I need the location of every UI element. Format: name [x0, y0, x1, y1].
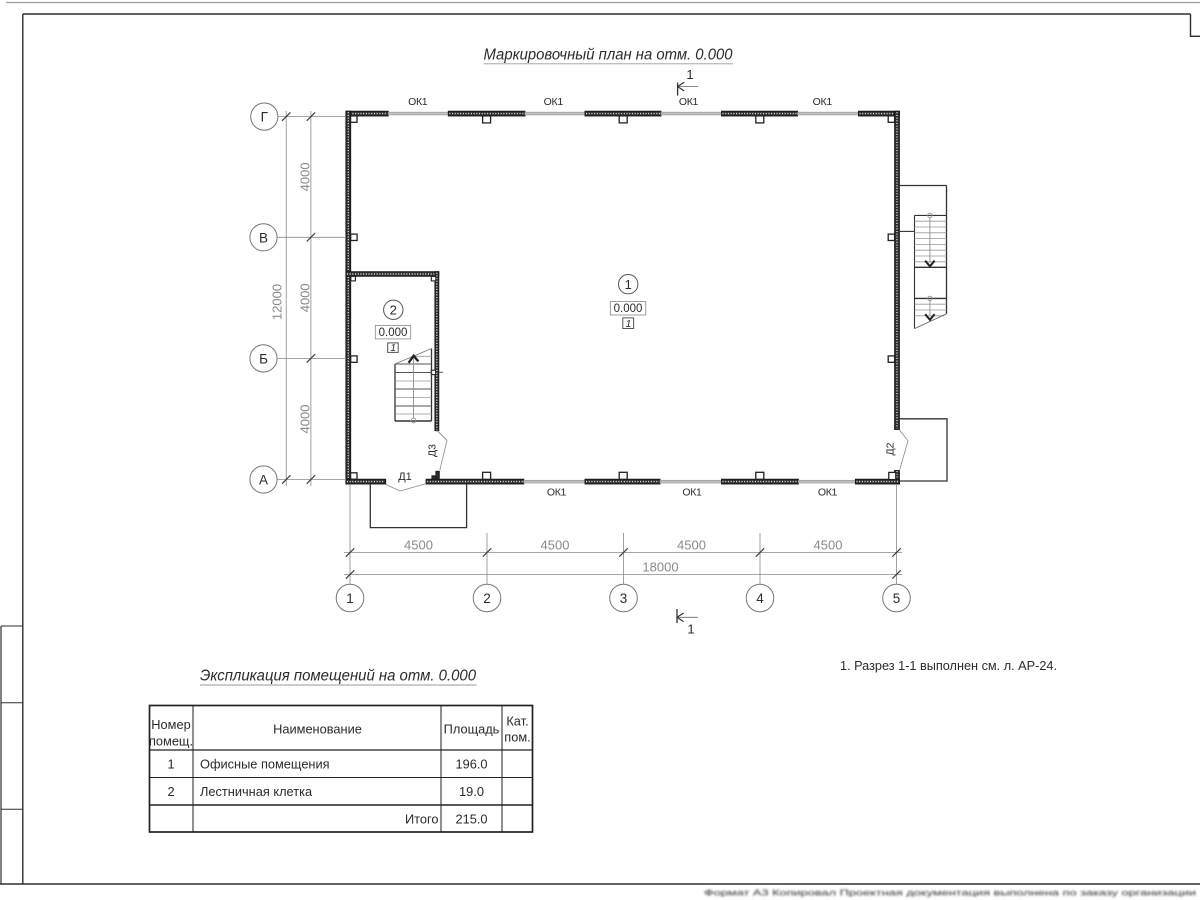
svg-text:0.000: 0.000 — [379, 327, 408, 339]
svg-text:Итого: Итого — [405, 812, 439, 827]
svg-text:1: 1 — [346, 591, 354, 606]
svg-text:Д3: Д3 — [427, 444, 439, 457]
svg-text:Площадь: Площадь — [444, 722, 500, 737]
svg-text:18000: 18000 — [642, 560, 678, 575]
svg-text:Д2: Д2 — [884, 442, 896, 455]
svg-text:Экспликация помещений на отм.: Экспликация помещений на отм. 0.000 — [200, 668, 476, 685]
svg-text:4000: 4000 — [297, 405, 312, 434]
svg-text:ОК1: ОК1 — [679, 96, 699, 108]
svg-text:4500: 4500 — [404, 538, 433, 553]
svg-text:0.000: 0.000 — [614, 303, 643, 315]
svg-text:Наименование: Наименование — [273, 722, 362, 737]
svg-text:215.0: 215.0 — [455, 812, 487, 827]
svg-text:ОК1: ОК1 — [818, 486, 838, 498]
svg-text:ОК1: ОК1 — [682, 486, 702, 498]
svg-text:4000: 4000 — [297, 162, 312, 191]
svg-text:2: 2 — [390, 303, 397, 318]
svg-text:1. Разрез 1-1 выполнен см. л.: 1. Разрез 1-1 выполнен см. л. АР-24. — [840, 659, 1057, 673]
svg-text:Маркировочный план на отм. 0.0: Маркировочный план на отм. 0.000 — [484, 47, 733, 64]
svg-text:ОК1: ОК1 — [813, 96, 833, 108]
svg-text:1: 1 — [626, 319, 632, 330]
svg-text:4500: 4500 — [541, 538, 570, 553]
svg-text:помещ.: помещ. — [149, 734, 193, 749]
svg-text:12000: 12000 — [270, 284, 285, 320]
svg-text:4500: 4500 — [677, 538, 706, 553]
svg-text:ОК1: ОК1 — [408, 96, 428, 108]
svg-text:4000: 4000 — [297, 283, 312, 312]
svg-text:1: 1 — [625, 277, 632, 292]
svg-text:1: 1 — [390, 343, 396, 354]
svg-text:Б: Б — [259, 351, 268, 366]
svg-text:пом.: пом. — [504, 730, 530, 745]
svg-text:4500: 4500 — [814, 538, 843, 553]
svg-text:Офисные помещения: Офисные помещения — [200, 757, 330, 772]
svg-text:Номер: Номер — [151, 717, 190, 732]
svg-text:2: 2 — [167, 784, 174, 799]
svg-text:1: 1 — [167, 757, 174, 772]
svg-text:1: 1 — [686, 67, 693, 82]
svg-text:19.0: 19.0 — [459, 784, 484, 799]
svg-text:Лестничная клетка: Лестничная клетка — [200, 784, 313, 799]
svg-text:196.0: 196.0 — [455, 757, 487, 772]
svg-text:4: 4 — [756, 591, 764, 606]
svg-text:2: 2 — [483, 591, 491, 606]
svg-text:Д1: Д1 — [398, 471, 412, 483]
svg-text:Кат.: Кат. — [506, 714, 528, 729]
svg-text:Формат А3 Копировал Проектна: Формат А3 Копировал Проектная документац… — [704, 889, 1196, 898]
svg-text:3: 3 — [620, 591, 628, 606]
svg-text:В: В — [259, 230, 268, 245]
svg-text:Г: Г — [261, 110, 269, 125]
svg-text:ОК1: ОК1 — [547, 486, 567, 498]
svg-text:А: А — [259, 473, 268, 488]
svg-text:1: 1 — [687, 622, 694, 637]
svg-text:ОК1: ОК1 — [544, 96, 564, 108]
svg-text:5: 5 — [893, 591, 901, 606]
